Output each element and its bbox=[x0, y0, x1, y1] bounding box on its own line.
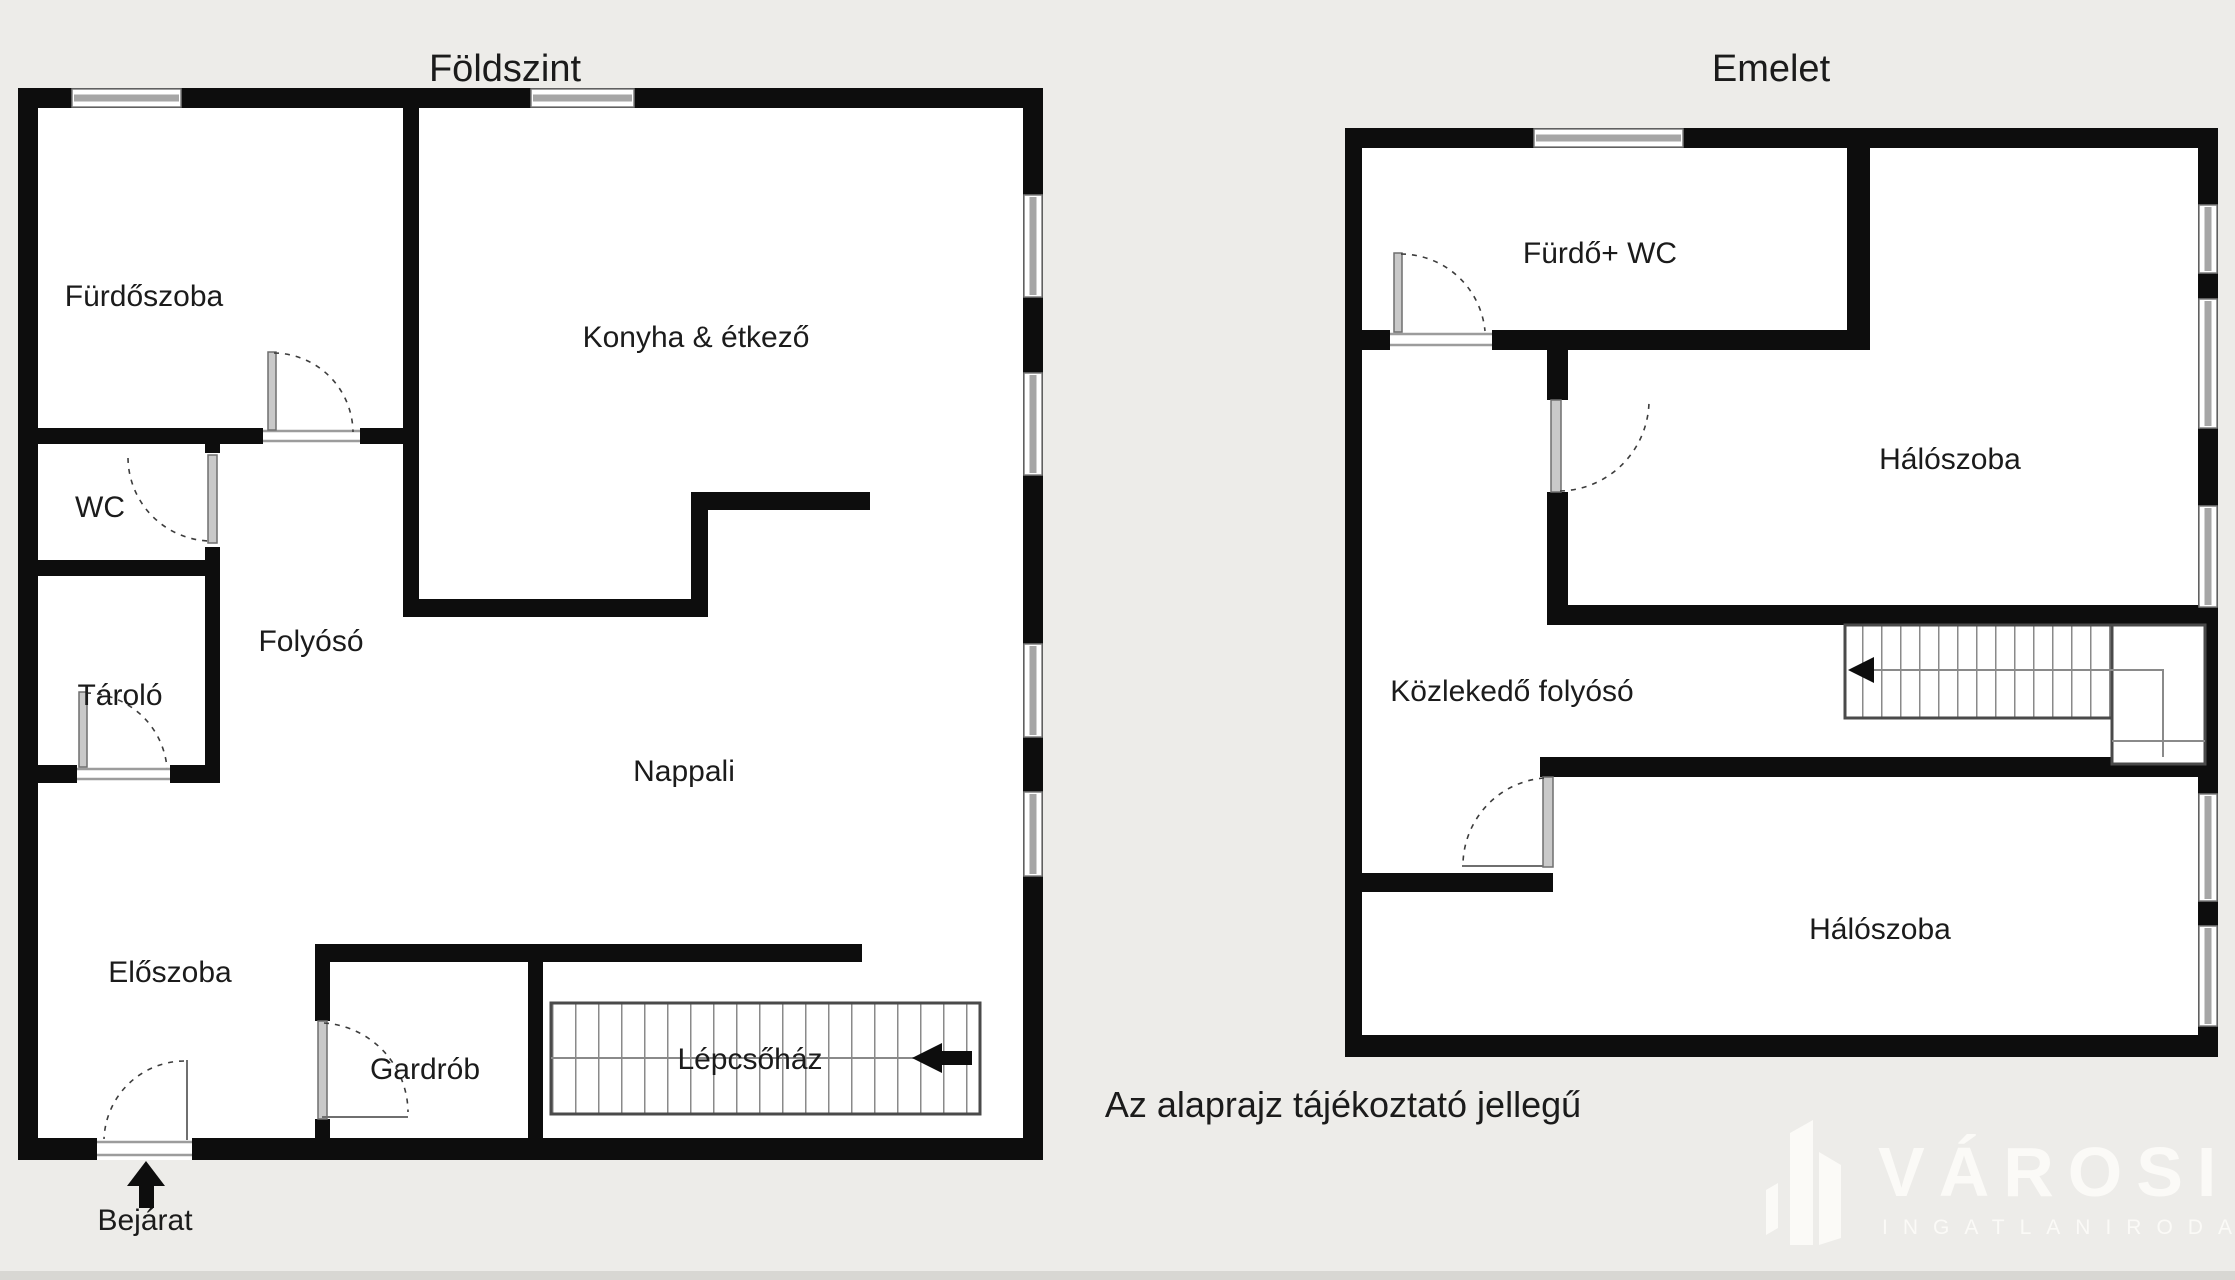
window bbox=[72, 89, 181, 107]
room-label-entry-hall: Előszoba bbox=[108, 956, 232, 989]
ground-floor-staircase: Lépcsőház bbox=[551, 1003, 980, 1114]
room-label-bedroom-1: Hálószoba bbox=[1879, 443, 2021, 476]
window bbox=[1534, 129, 1683, 147]
window bbox=[2199, 299, 2217, 428]
floorplan-page: Földszint bbox=[0, 0, 2235, 1280]
room-label-staircase: Lépcsőház bbox=[677, 1043, 822, 1076]
window bbox=[1024, 195, 1042, 297]
upper-floor-title: Emelet bbox=[1712, 48, 1831, 90]
window bbox=[1024, 644, 1042, 737]
room-label-storage: Tároló bbox=[77, 679, 162, 712]
window bbox=[1024, 792, 1042, 876]
upper-floor-footprint bbox=[1345, 128, 2218, 1057]
ground-floor-title: Földszint bbox=[429, 48, 581, 90]
window bbox=[2199, 205, 2217, 273]
entrance-label: Bejárat bbox=[97, 1204, 193, 1237]
upper-floor-plan: Emelet bbox=[1345, 48, 2218, 1057]
room-label-corridor: Közlekedő folyósó bbox=[1390, 675, 1634, 708]
room-label-wc: WC bbox=[75, 491, 125, 524]
ground-floor-plan: Földszint bbox=[18, 48, 1043, 1237]
room-label-wardrobe: Gardrób bbox=[370, 1053, 480, 1086]
room-label-hallway: Folyósó bbox=[258, 625, 363, 658]
disclaimer-text: Az alaprajz tájékoztató jellegű bbox=[1105, 1084, 1581, 1125]
window bbox=[2199, 794, 2217, 901]
room-label-kitchen: Konyha & étkező bbox=[583, 321, 810, 354]
room-label-bathroom: Fürdőszoba bbox=[65, 280, 224, 313]
logo-subtitle: INGATLANIRODA bbox=[1882, 1216, 2235, 1239]
room-label-bedroom-2: Hálószoba bbox=[1809, 913, 1951, 946]
room-label-bathroom-wc: Fürdő+ WC bbox=[1523, 237, 1677, 270]
window bbox=[1024, 373, 1042, 475]
logo-name: VÁROSI bbox=[1878, 1133, 2230, 1211]
floorplan-canvas: Földszint bbox=[0, 0, 2235, 1280]
window bbox=[531, 89, 634, 107]
window bbox=[2199, 506, 2217, 607]
room-label-living-room: Nappali bbox=[633, 755, 735, 788]
bottom-bar bbox=[0, 1271, 2235, 1280]
window bbox=[2199, 926, 2217, 1026]
